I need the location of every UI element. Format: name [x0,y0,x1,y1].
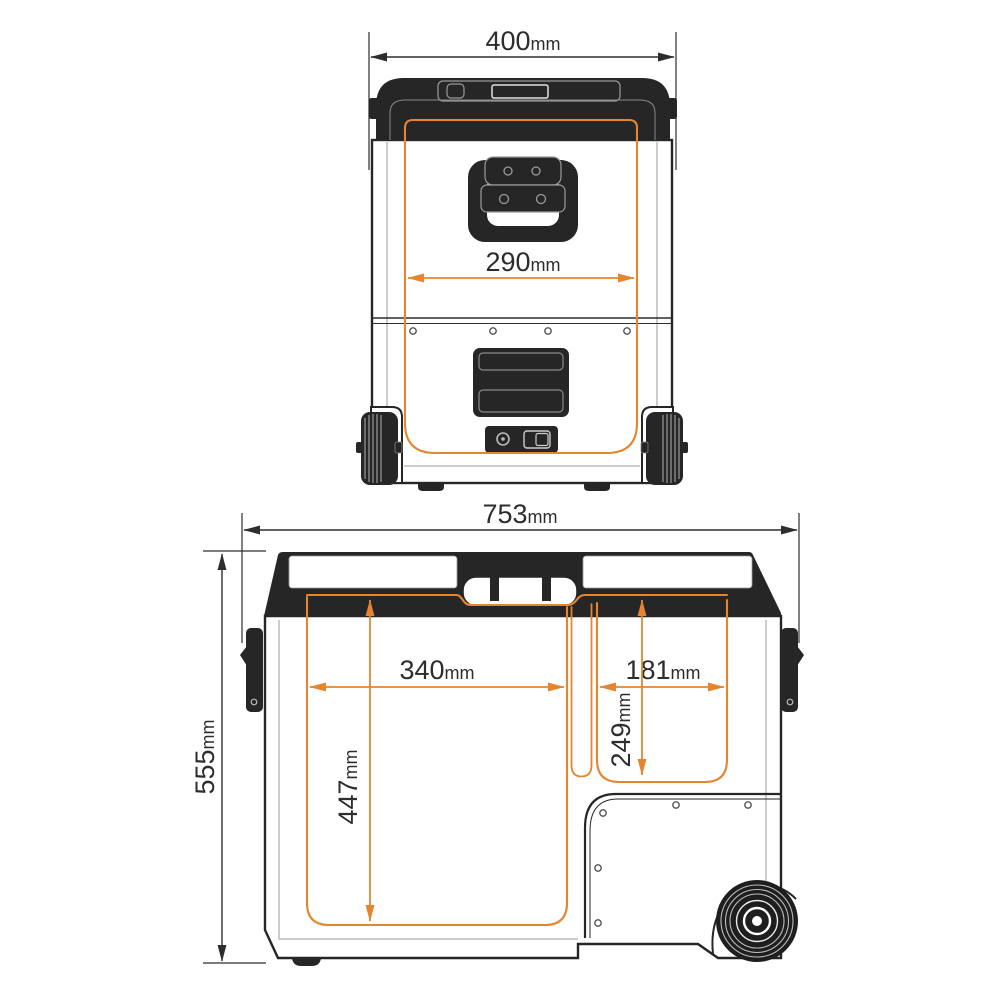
axle-nub [682,442,688,453]
foot [292,958,321,966]
front-right-wheel [641,412,688,485]
handle-grip-tab [542,577,551,601]
power-port-dot [501,437,505,441]
dimension-diagram-svg: 400mm [0,0,1000,1000]
carry-handle [468,157,578,242]
foot [418,483,444,491]
side-overall-height-dimension: 555mm [190,551,266,963]
lid-inset-panel [289,556,457,588]
lid-side-notch [667,98,677,119]
latch-tab [240,646,247,666]
power-panel [485,426,558,453]
wheel-axle-cap [752,916,762,926]
lid-inset-panel [583,556,752,588]
handle-grip-tab [490,577,499,601]
right-latch [781,628,804,712]
cooler-side-lid [264,552,781,616]
dim-label-side-overall-width: 753mm [482,499,557,529]
handle-hinge-plate [485,157,561,185]
handle-grip-plate [481,185,565,212]
axle-nub [395,442,402,453]
left-latch [240,628,263,712]
axle-nub [641,442,648,453]
dimension-diagram-page: 400mm [0,0,1000,1000]
front-left-wheel [356,412,402,485]
front-view-drawing: 400mm [356,26,688,491]
cooler-front-lid [369,78,677,140]
foot [584,483,610,491]
axle-nub [356,442,362,453]
lid-side-notch [369,98,379,119]
dim-label-side-overall-height: 555mm [190,719,220,794]
latch-tab [797,646,804,666]
lid-handle-recess [463,577,577,606]
side-wheel [716,880,798,962]
side-view-drawing: 753mm 555mm [190,499,804,966]
vent-panel [473,348,569,417]
dim-label-front-overall-width: 400mm [485,26,560,56]
